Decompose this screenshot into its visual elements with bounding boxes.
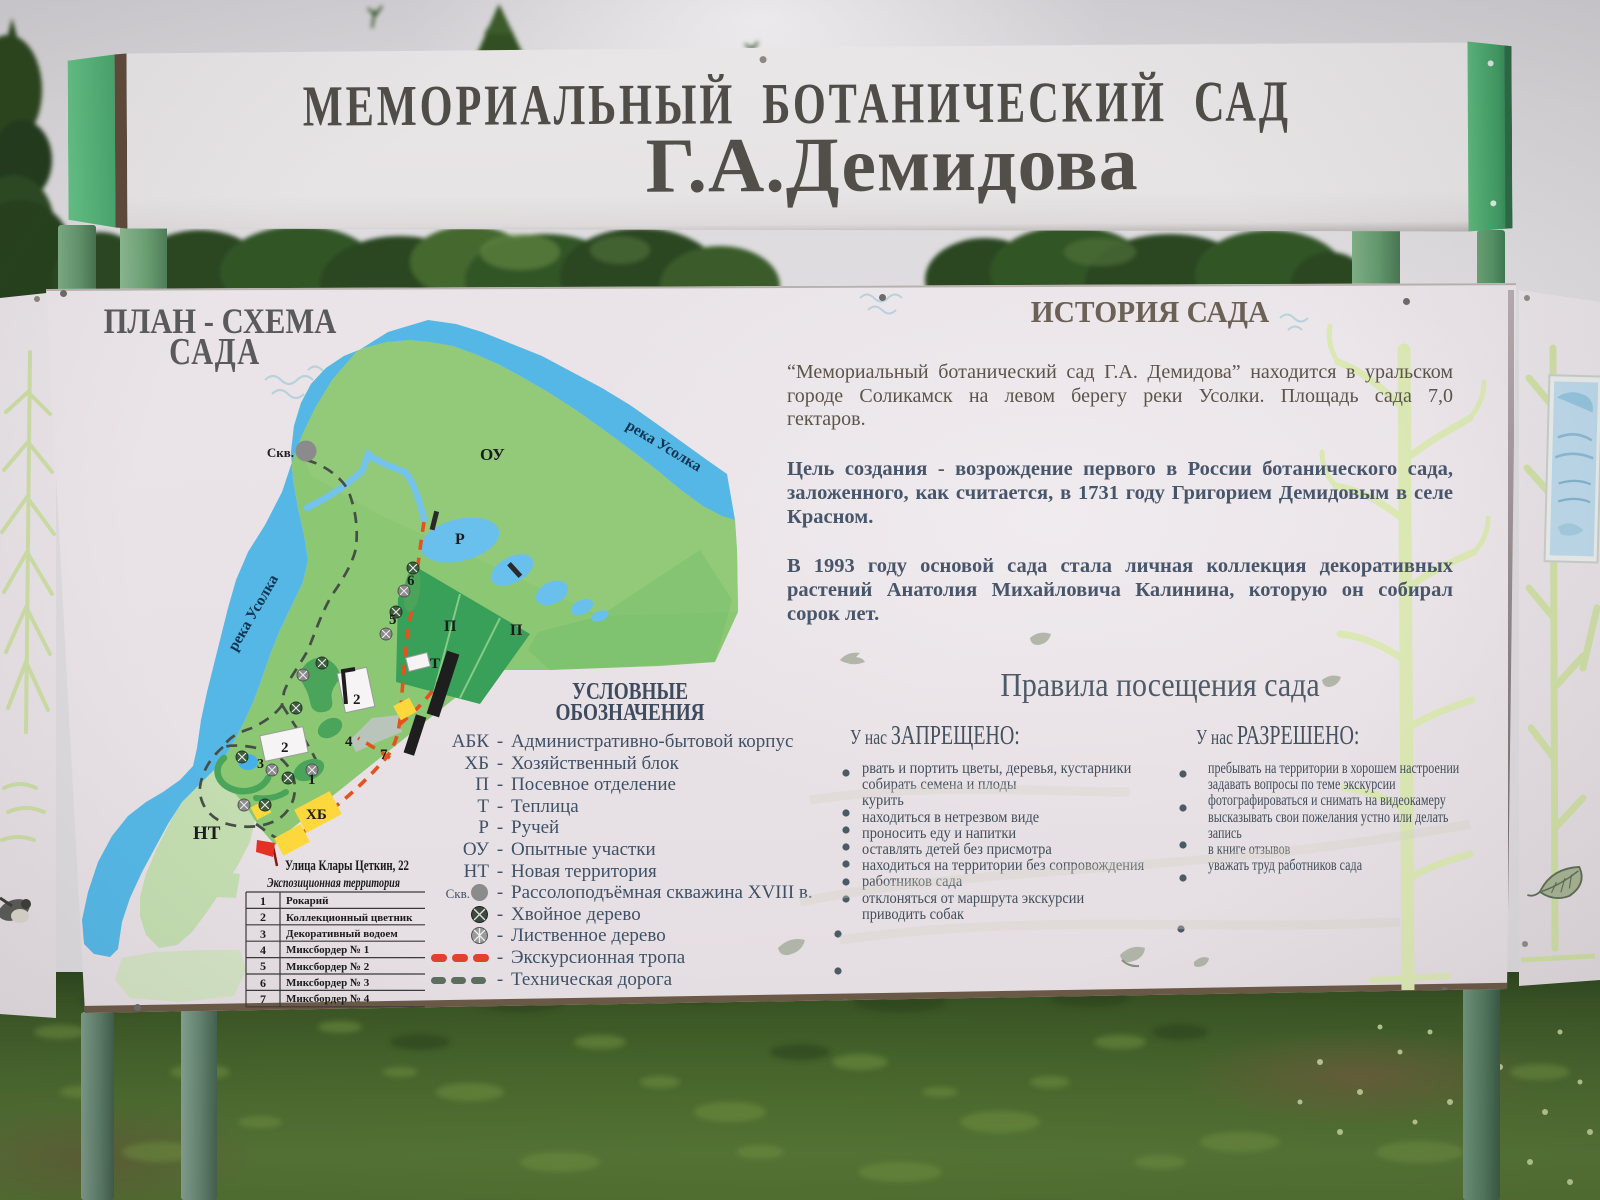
svg-text:ХБ: ХБ	[306, 807, 327, 823]
svg-text:ОУ: ОУ	[480, 445, 505, 464]
svg-text:7: 7	[260, 992, 266, 1006]
svg-text:Декоративный водоем: Декоративный водоем	[286, 928, 398, 940]
svg-text:2: 2	[353, 692, 361, 708]
svg-text:Рокарий: Рокарий	[286, 895, 329, 907]
svg-text:НТ: НТ	[193, 823, 221, 844]
svg-text:Миксбордер № 3: Миксбордер № 3	[286, 977, 370, 989]
svg-text:Р: Р	[455, 531, 465, 548]
svg-text:5: 5	[389, 612, 397, 628]
svg-text:Миксбордер № 2: Миксбордер № 2	[286, 961, 370, 973]
svg-text:3: 3	[260, 927, 266, 941]
svg-text:2: 2	[281, 740, 289, 756]
svg-text:Миксбордер № 1: Миксбордер № 1	[286, 944, 369, 956]
svg-text:6: 6	[407, 573, 415, 589]
svg-text:П: П	[444, 618, 457, 635]
svg-text:2: 2	[260, 910, 266, 924]
svg-text:Улица Клары Цеткин, 22: Улица Клары Цеткин, 22	[285, 858, 409, 874]
svg-text:4: 4	[260, 943, 266, 957]
svg-text:Экспозиционная территория: Экспозиционная территория	[267, 875, 400, 890]
svg-text:Т: Т	[430, 656, 440, 672]
svg-text:Скв.: Скв.	[267, 445, 294, 460]
svg-text:5: 5	[260, 959, 266, 973]
svg-text:П: П	[510, 622, 523, 639]
svg-text:Коллекционный цветник: Коллекционный цветник	[286, 912, 413, 924]
svg-text:7: 7	[380, 747, 388, 763]
svg-text:Миксбордер № 4: Миксбордер № 4	[286, 993, 370, 1005]
svg-text:1: 1	[260, 894, 266, 908]
svg-text:4: 4	[345, 734, 353, 750]
svg-text:6: 6	[260, 976, 266, 990]
svg-text:3: 3	[257, 757, 264, 772]
svg-text:1: 1	[308, 772, 316, 788]
